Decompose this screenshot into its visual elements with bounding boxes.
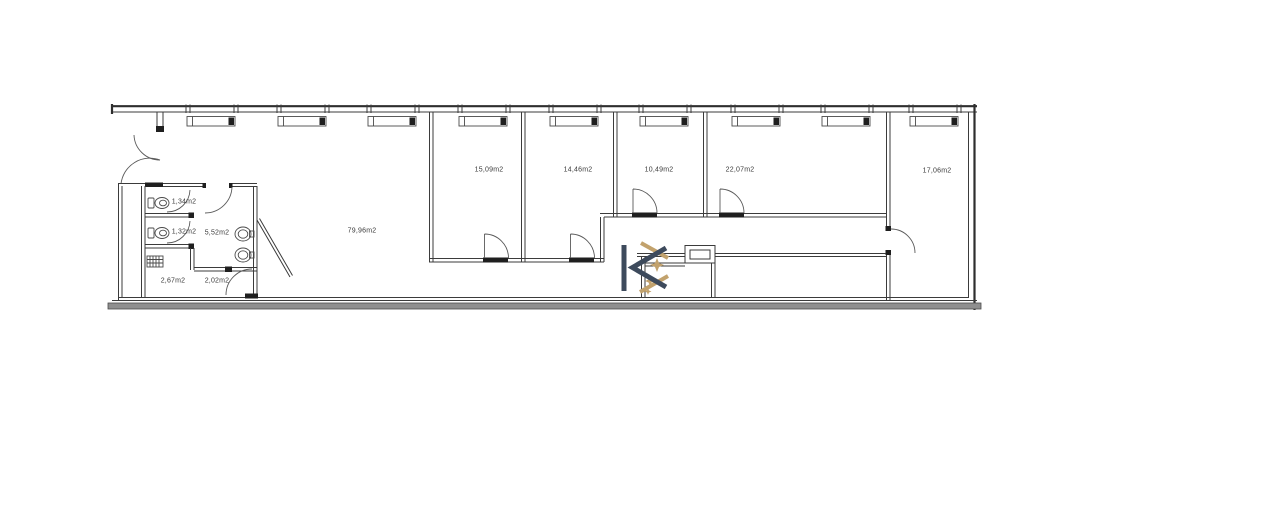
- room-area-label: 5,52m2: [205, 230, 230, 237]
- room-area-label: 10,49m2: [645, 167, 674, 174]
- room-area-label: 22,07m2: [726, 167, 755, 174]
- room-labels: 79,96m2 15,09m2 14,46m2 10,49m2 22,07m2 …: [0, 0, 1280, 529]
- room-area-label: 17,06m2: [923, 168, 952, 175]
- room-area-label: 1,32m2: [172, 229, 197, 236]
- room-area-label: 14,46m2: [564, 167, 593, 174]
- room-area-label: 15,09m2: [475, 167, 504, 174]
- room-area-label: 1,34m2: [172, 199, 197, 206]
- room-area-label: 2,02m2: [205, 278, 230, 285]
- room-area-label: 2,67m2: [161, 278, 186, 285]
- floorplan-page: 79,96m2 15,09m2 14,46m2 10,49m2 22,07m2 …: [0, 0, 1280, 529]
- room-area-label: 79,96m2: [348, 228, 377, 235]
